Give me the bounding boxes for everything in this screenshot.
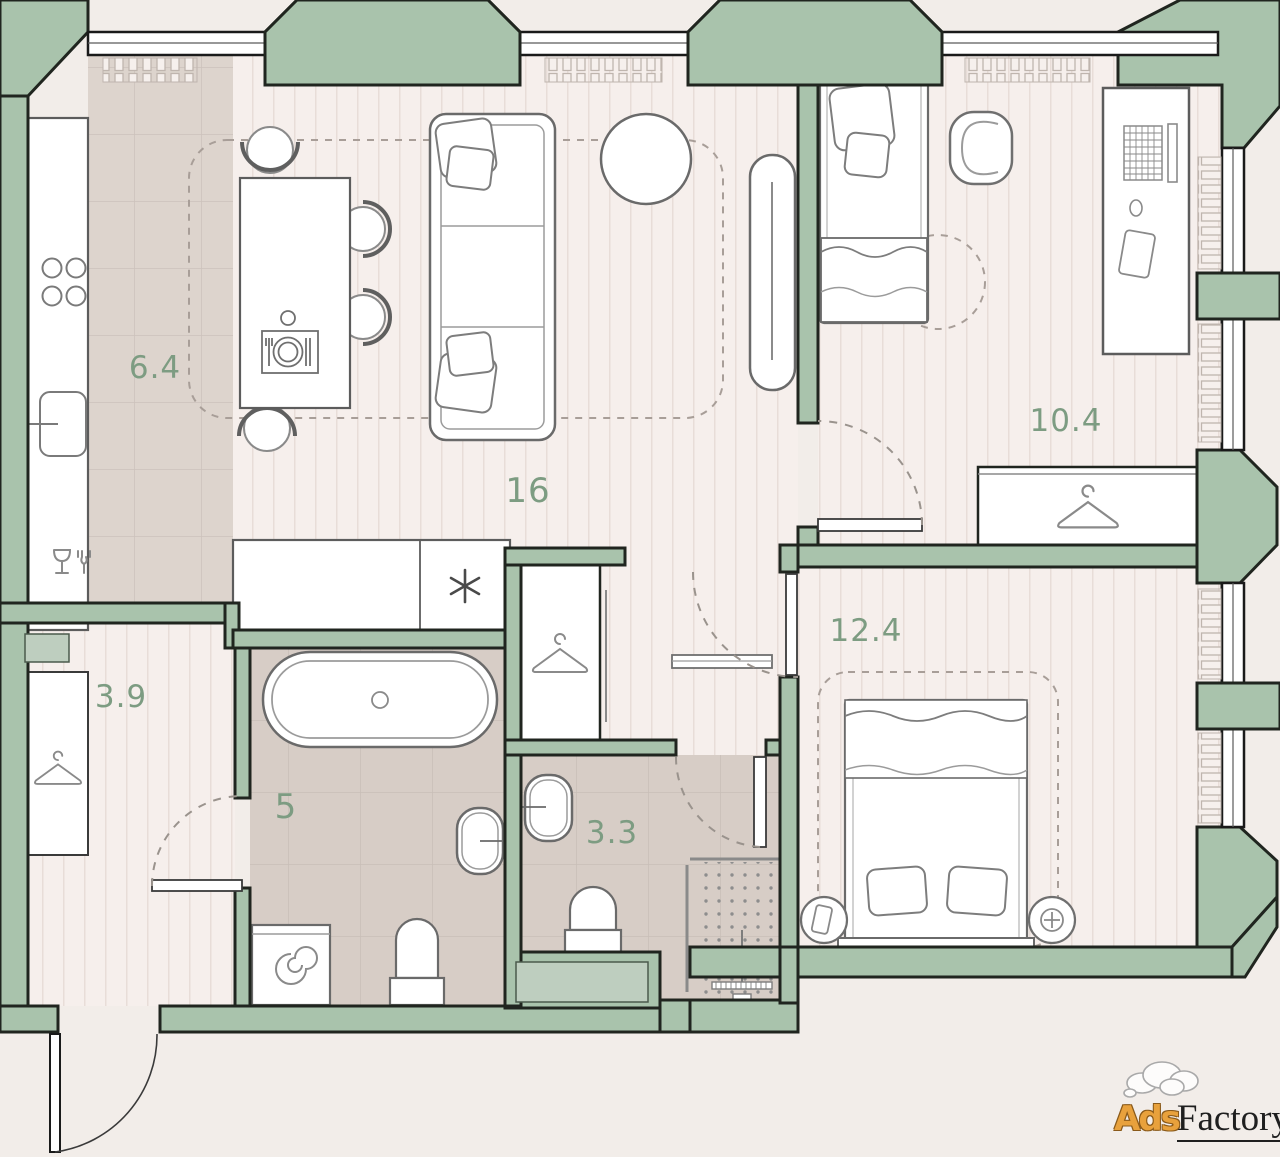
wall-under-shower <box>690 1000 798 1032</box>
washing-machine <box>252 925 330 1005</box>
bed-blanket <box>821 238 927 322</box>
kitchen-counter-row <box>233 540 510 632</box>
wall-living-bedroom <box>798 55 818 423</box>
floor-plan-drawing <box>0 0 1280 1157</box>
floor-plan-canvas: 6.4 16 3.9 5 3.3 10.4 12.4 AdsFactory <box>0 0 1280 1157</box>
single-bed <box>820 70 928 323</box>
radiator <box>1198 733 1221 823</box>
shower-zone <box>687 859 780 1001</box>
radiator <box>1198 157 1221 269</box>
hall-wardrobe <box>28 672 88 855</box>
sofa <box>430 114 555 440</box>
room-label-living-room: 16 <box>505 471 550 511</box>
wall-kitchen-hallway <box>0 603 233 623</box>
nightstand <box>1029 897 1075 943</box>
wall-pier-right-2 <box>1197 450 1277 583</box>
wardrobe <box>978 467 1197 552</box>
toilet <box>565 887 621 952</box>
shower-sink <box>520 775 572 841</box>
wall-bottom-right <box>690 947 1238 977</box>
wall-under-counter <box>233 630 521 648</box>
room-label-master-bedroom: 12.4 <box>829 613 902 649</box>
wall-bathroom-left-a <box>235 648 250 798</box>
double-bed <box>838 700 1034 949</box>
closet <box>521 565 606 742</box>
mouse-icon <box>1130 200 1142 216</box>
bed-blanket <box>845 700 1027 778</box>
wall-bathroom-left-b <box>235 888 250 1006</box>
room-label-hallway: 3.9 <box>95 679 147 715</box>
radiator <box>965 58 1090 82</box>
desk <box>1103 88 1189 354</box>
wall-shower-room-top <box>505 740 676 755</box>
keyboard-icon <box>1124 126 1162 180</box>
desk-chair <box>950 112 1012 184</box>
notebook-icon <box>1118 230 1155 279</box>
wall-bathroom-right <box>505 548 521 1006</box>
monitor-icon <box>1168 124 1177 182</box>
room-label-shower-room: 3.3 <box>586 815 638 851</box>
watermark-factory: Factory <box>1177 1098 1280 1142</box>
bed-pillow <box>844 132 890 178</box>
radiator <box>103 58 197 82</box>
wall-left <box>0 30 28 1032</box>
corridor-shelf <box>672 655 772 668</box>
wall-bedroom-divider <box>798 545 1197 567</box>
round-table <box>601 114 691 204</box>
wall-bottom-left <box>0 1006 58 1032</box>
bed-pillow <box>866 866 927 916</box>
toilet <box>390 919 444 1005</box>
wall-niche <box>25 634 69 662</box>
wall-corner-top-left <box>0 0 88 96</box>
watermark-ads: Ads <box>1114 1099 1179 1139</box>
radiator <box>1198 589 1221 679</box>
bed-pillow <box>946 866 1007 916</box>
watermark: AdsFactory <box>1114 1053 1274 1153</box>
wall-niche <box>516 962 648 1002</box>
nightstand <box>801 897 847 943</box>
radiator <box>545 58 662 82</box>
room-label-bathroom: 5 <box>275 787 298 827</box>
wall-bottom-left-2 <box>160 1006 690 1032</box>
room-label-kitchen: 6.4 <box>129 350 181 386</box>
bathtub <box>263 652 497 747</box>
radiator <box>1198 324 1221 442</box>
console-cabinet <box>750 155 795 390</box>
entrance-door <box>50 1034 157 1152</box>
cloud-icon <box>1114 1053 1204 1099</box>
room-label-bedroom: 10.4 <box>1029 403 1102 439</box>
wall-master-bedroom-left <box>780 677 798 947</box>
wall-closet-top <box>505 548 625 565</box>
bathroom-sink <box>457 808 508 874</box>
